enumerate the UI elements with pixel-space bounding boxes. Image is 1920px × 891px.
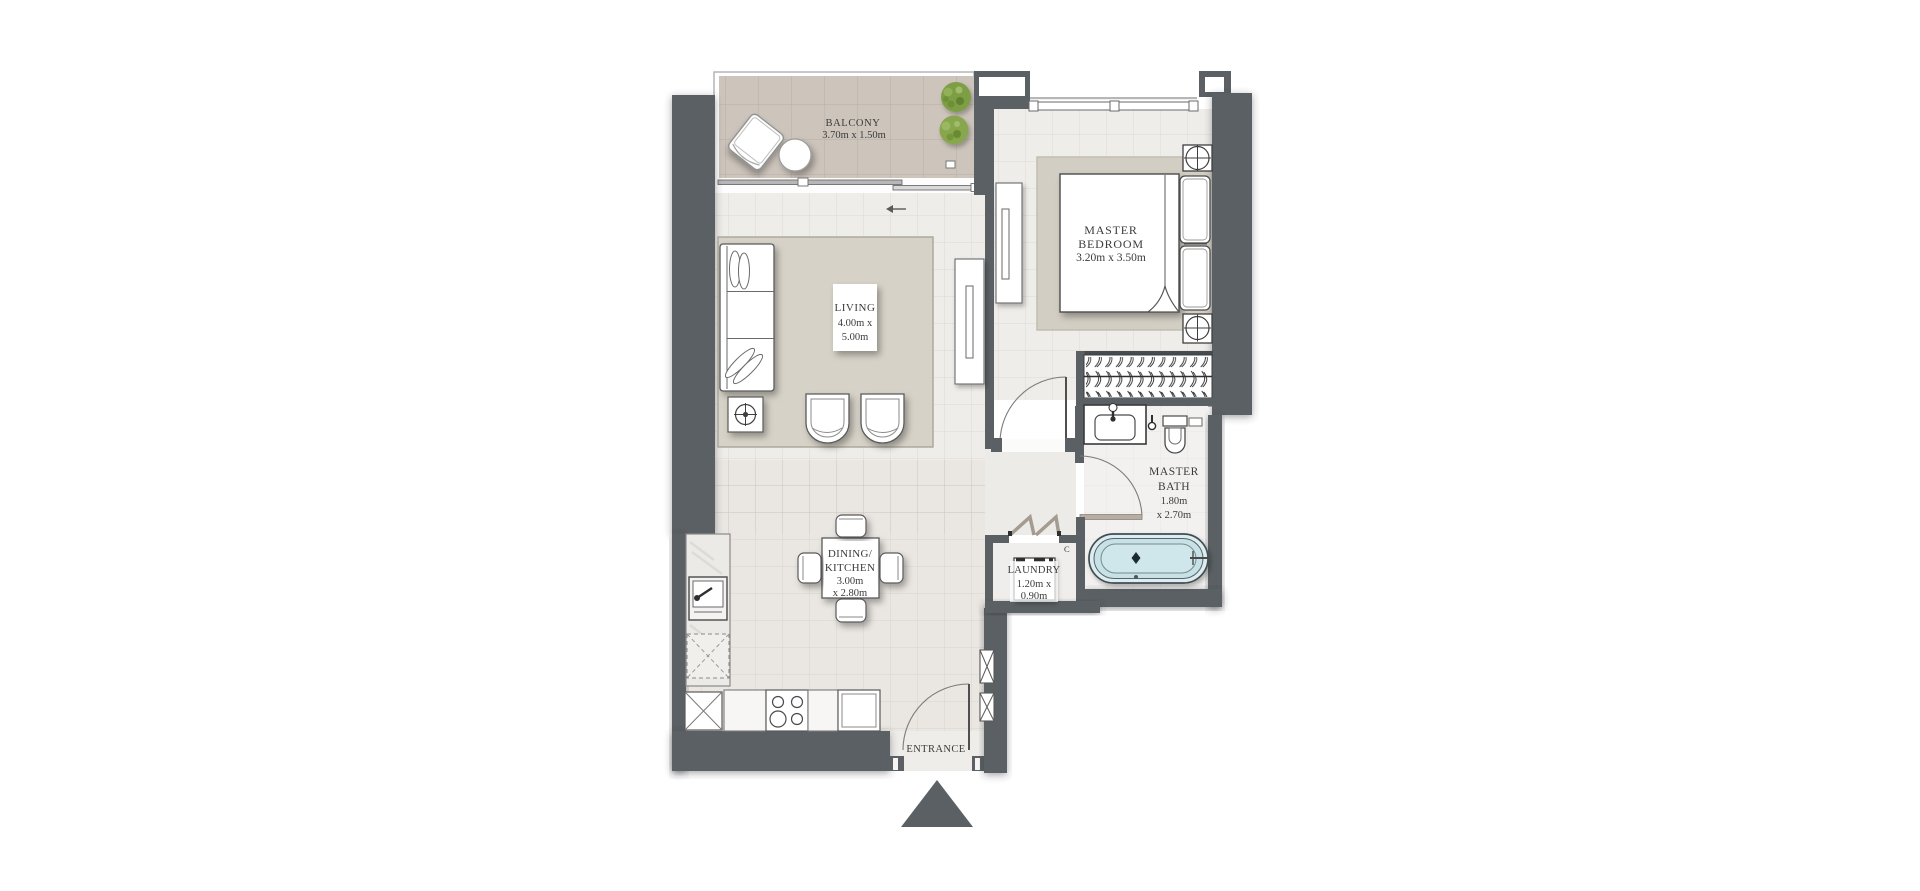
svg-text:0.90m: 0.90m — [1021, 591, 1048, 602]
svg-text:x 2.70m: x 2.70m — [1157, 510, 1191, 521]
svg-text:BEDROOM: BEDROOM — [1078, 237, 1144, 251]
svg-text:1.20m x: 1.20m x — [1017, 579, 1052, 590]
svg-text:LAUNDRY: LAUNDRY — [1008, 565, 1061, 576]
svg-text:4.00m x: 4.00m x — [838, 318, 873, 329]
svg-text:3.00m: 3.00m — [837, 576, 864, 587]
svg-text:x 2.80m: x 2.80m — [833, 588, 867, 599]
svg-text:MASTER: MASTER — [1084, 223, 1137, 237]
svg-text:KITCHEN: KITCHEN — [825, 562, 875, 574]
svg-text:3.20m x 3.50m: 3.20m x 3.50m — [1076, 252, 1146, 264]
svg-text:BALCONY: BALCONY — [826, 118, 881, 129]
svg-text:1.80m: 1.80m — [1161, 496, 1188, 507]
svg-text:LIVING: LIVING — [835, 302, 876, 314]
svg-text:MASTER: MASTER — [1149, 466, 1199, 478]
svg-text:BATH: BATH — [1158, 481, 1190, 493]
svg-text:ENTRANCE: ENTRANCE — [906, 744, 965, 755]
svg-text:5.00m: 5.00m — [842, 332, 869, 343]
svg-text:DINING/: DINING/ — [828, 548, 873, 560]
svg-text:3.70m x 1.50m: 3.70m x 1.50m — [822, 130, 886, 141]
svg-text:C: C — [1064, 544, 1070, 554]
